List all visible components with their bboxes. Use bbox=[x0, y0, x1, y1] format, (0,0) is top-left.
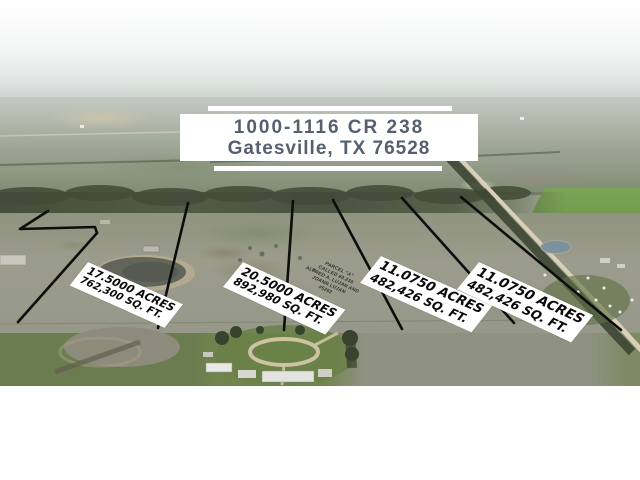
north-boundary-notch bbox=[20, 211, 97, 233]
scene-overlay bbox=[0, 0, 640, 480]
address-banner: 1000-1116 CR 238 Gatesville, TX 76528 bbox=[180, 114, 478, 161]
land-listing-image: PARCEL "A" CALLED 60.230 ALFRED A. LUJAN… bbox=[0, 0, 640, 480]
tree-line-canopy bbox=[0, 185, 531, 206]
banner-accent-bar-bottom bbox=[214, 166, 442, 171]
banner-accent-bar-top bbox=[208, 106, 452, 111]
address-line: 1000-1116 CR 238 bbox=[234, 117, 424, 138]
roadside-pond bbox=[541, 241, 571, 254]
tree-shadow bbox=[350, 332, 352, 368]
city-state-zip-line: Gatesville, TX 76528 bbox=[228, 138, 431, 159]
